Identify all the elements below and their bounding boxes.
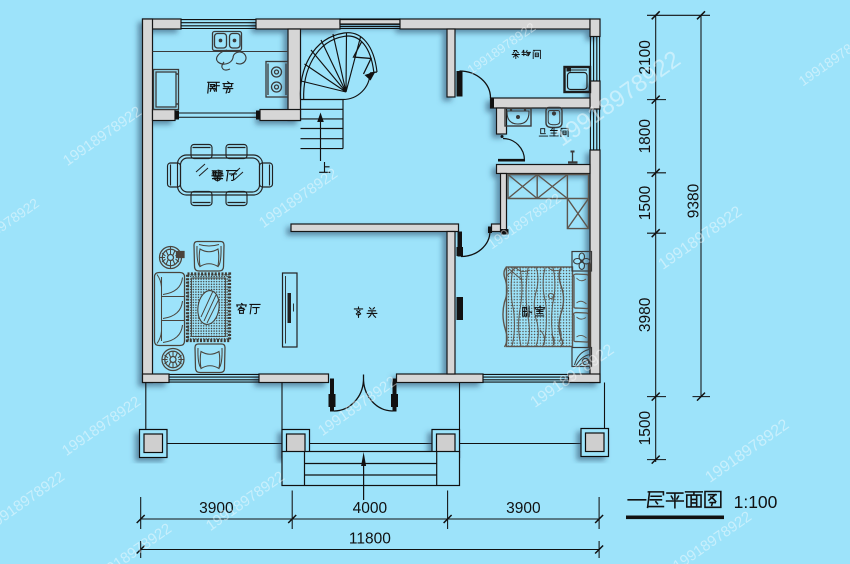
svg-text:9380: 9380: [686, 183, 703, 218]
svg-text:19918978922: 19918978922: [702, 416, 792, 486]
svg-text:19918978922: 19918978922: [59, 393, 144, 460]
svg-text:1500: 1500: [637, 185, 654, 220]
svg-text:19918978922: 19918978922: [0, 195, 42, 257]
svg-text:3900: 3900: [506, 500, 541, 517]
svg-text:19918978922: 19918978922: [0, 468, 68, 535]
svg-text:1:100: 1:100: [734, 492, 778, 512]
svg-text:1500: 1500: [637, 410, 654, 445]
svg-text:3980: 3980: [637, 297, 654, 332]
svg-text:19918978922: 19918978922: [256, 165, 341, 232]
svg-text:1800: 1800: [637, 119, 654, 154]
svg-text:4000: 4000: [353, 500, 388, 517]
svg-text:19918978922: 19918978922: [90, 520, 175, 564]
svg-text:19918978922: 19918978922: [60, 103, 145, 170]
svg-text:11800: 11800: [349, 531, 391, 548]
svg-text:19918978922: 19918978922: [795, 27, 850, 89]
